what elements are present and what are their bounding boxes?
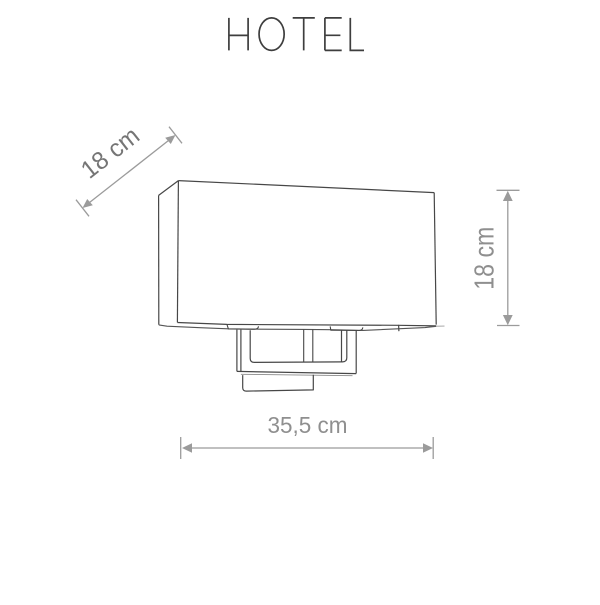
svg-text:18 cm: 18 cm [468,227,499,290]
svg-text:35,5 cm: 35,5 cm [268,412,348,438]
